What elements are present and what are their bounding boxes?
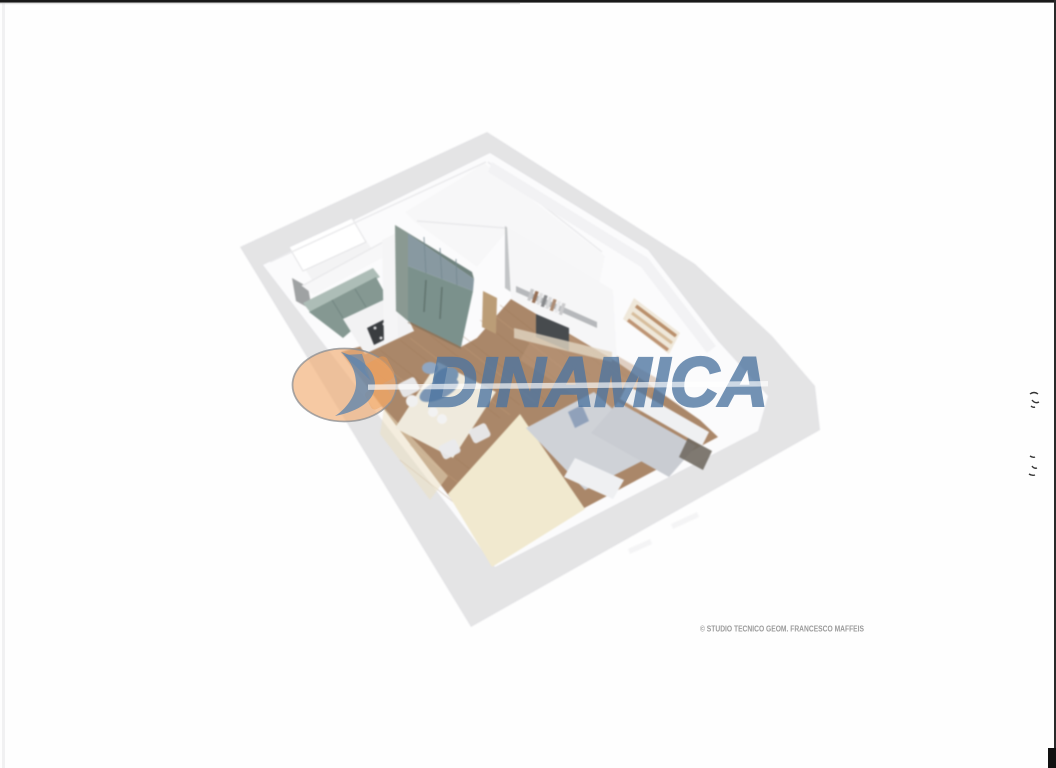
svg-text:© STUDIO TECNICO GEOM. FRANCES: © STUDIO TECNICO GEOM. FRANCESCO MAFFEIS — [700, 625, 865, 634]
